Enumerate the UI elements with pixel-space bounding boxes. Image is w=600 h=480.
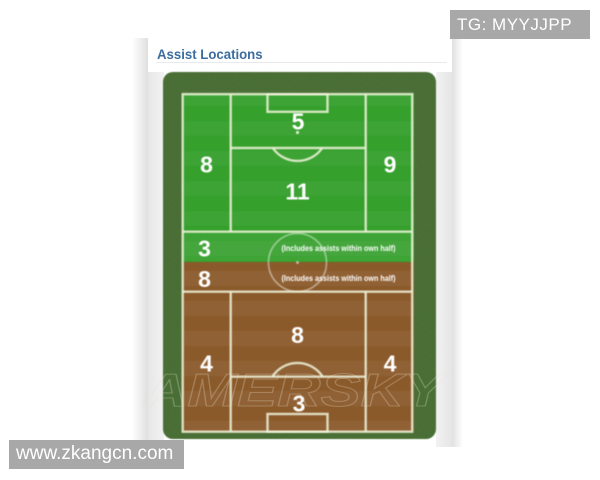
svg-text:AMERSKY: AMERSKY	[143, 364, 450, 416]
svg-text:8: 8	[291, 322, 304, 348]
svg-text:8: 8	[198, 266, 211, 292]
svg-text:9: 9	[384, 152, 397, 178]
svg-text:11: 11	[285, 179, 310, 205]
svg-text:(Includes assists within own h: (Includes assists within own half)	[282, 273, 396, 283]
svg-text:(Includes assists within own h: (Includes assists within own half)	[282, 243, 396, 253]
svg-text:3: 3	[198, 236, 211, 262]
svg-text:5: 5	[292, 109, 305, 135]
svg-text:8: 8	[200, 152, 213, 178]
